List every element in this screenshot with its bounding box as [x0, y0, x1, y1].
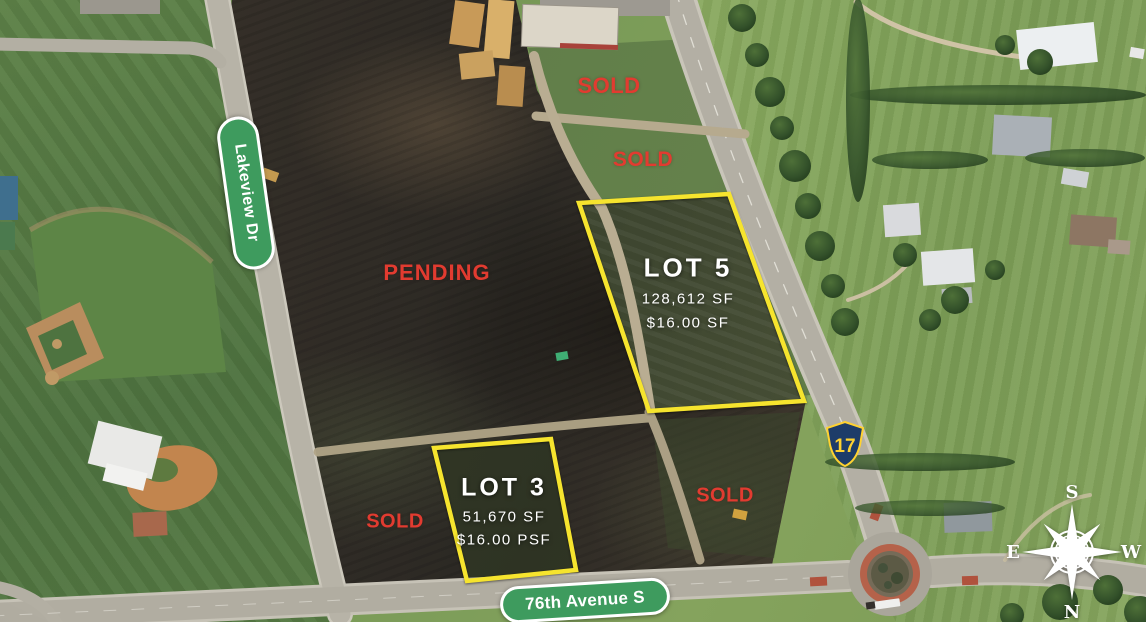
lot3-area: 51,670 SF: [463, 509, 546, 526]
lot3-price: $16.00 PSF: [457, 532, 551, 549]
compass-rose-icon: S N E W: [1002, 480, 1142, 622]
lot5-area: 128,612 SF: [642, 291, 735, 308]
compass-east-label: E: [1006, 542, 1020, 563]
lot5-price: $16.00 SF: [647, 315, 730, 332]
lot5-name: LOT 5: [644, 253, 733, 284]
highway-17-shield: 17: [825, 421, 865, 467]
lakeview-dr-text: Lakeview Dr: [230, 143, 262, 243]
compass-south-label: S: [1066, 482, 1079, 503]
compass-star: [1022, 504, 1122, 600]
compass-north-label: N: [1064, 602, 1080, 622]
76th-avenue-s-text: 76th Avenue S: [525, 587, 646, 614]
lot5-info: LOT 5 128,612 SF $16.00 SF: [642, 253, 735, 332]
lot-boundaries: [0, 0, 1146, 622]
shield-route-number: 17: [834, 436, 855, 457]
status-label-sold-mid: SOLD: [613, 148, 673, 172]
status-label-pending: PENDING: [383, 260, 490, 286]
status-label-sold-right: SOLD: [696, 485, 754, 508]
lot3-info: LOT 3 51,670 SF $16.00 PSF: [457, 474, 551, 549]
aerial-lot-map: SOLD SOLD SOLD SOLD PENDING LOT 5 128,61…: [0, 0, 1146, 622]
status-label-sold-left: SOLD: [366, 511, 424, 534]
compass-west-label: W: [1120, 542, 1142, 563]
status-label-sold-top: SOLD: [577, 73, 640, 99]
lot3-name: LOT 3: [461, 474, 547, 503]
